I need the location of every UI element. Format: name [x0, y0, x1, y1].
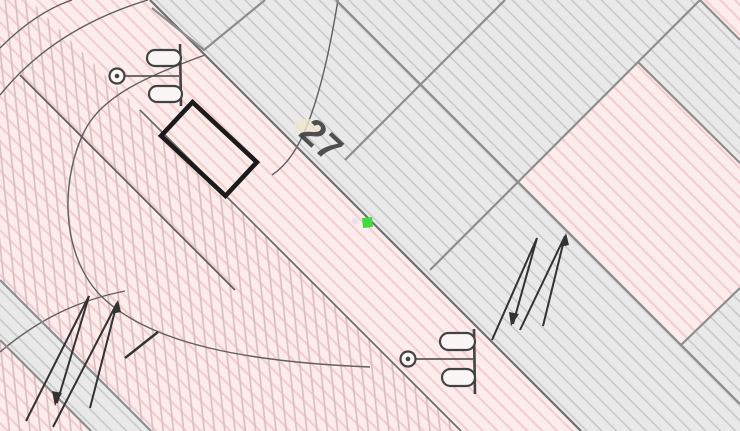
- lamp-dot-icon: [115, 74, 120, 79]
- faded-point: [352, 218, 358, 224]
- location-marker[interactable]: [362, 217, 373, 228]
- lamp-prong-bottom: [442, 369, 475, 386]
- lamp-prong-bottom: [149, 86, 182, 102]
- map-canvas[interactable]: 27: [0, 0, 740, 431]
- lamp-prong-top: [147, 50, 181, 66]
- lamp-prong-top: [440, 333, 475, 350]
- lamp-dot-icon: [406, 357, 411, 362]
- map-viewport: 27: [0, 0, 740, 431]
